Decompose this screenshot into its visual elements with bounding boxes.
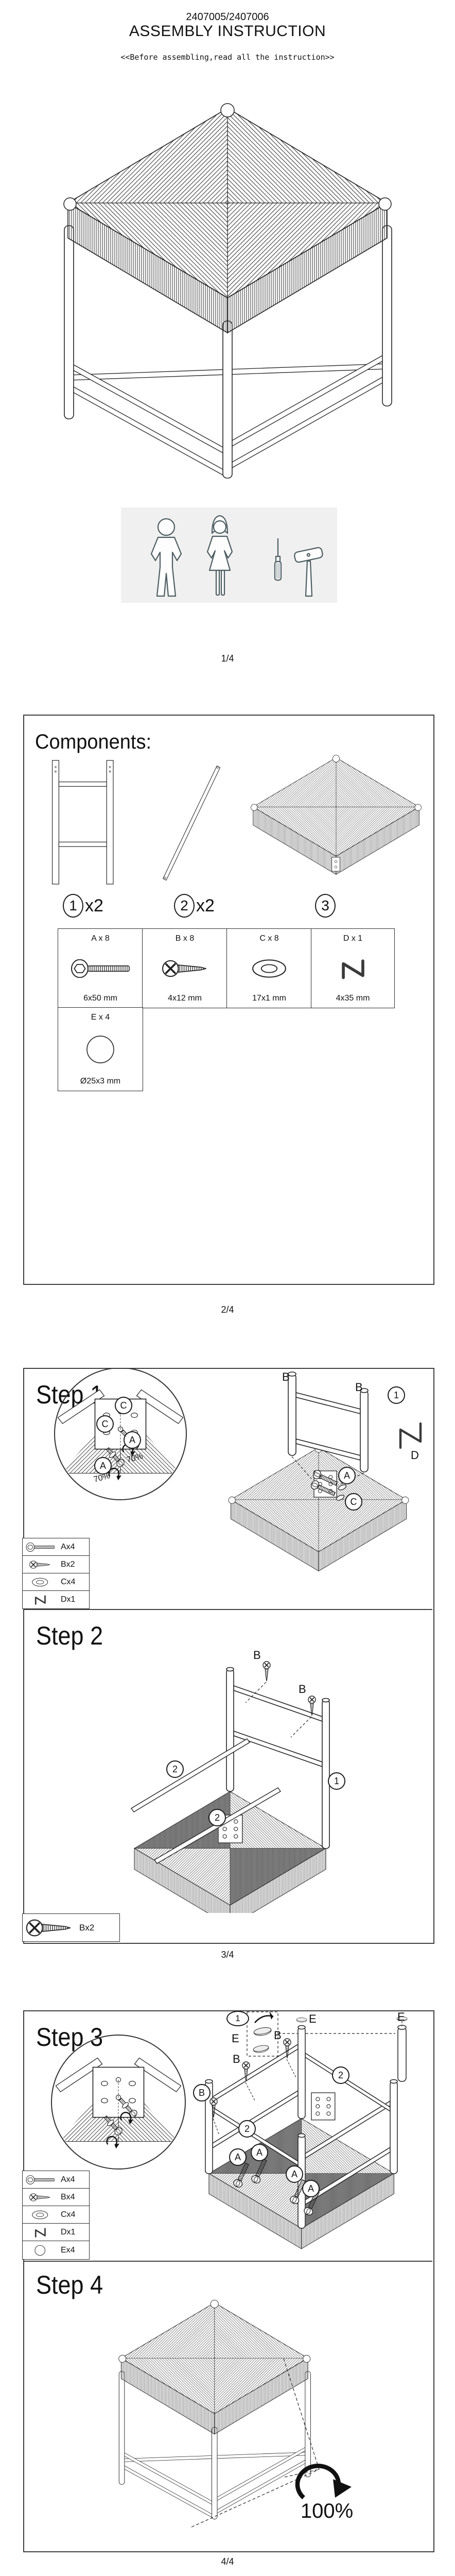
glide-disc-icon [25,2244,57,2257]
legend-qty: Dx1 [61,1595,75,1604]
hardware-cell-a: A x 8 6x50 mm [58,928,143,1008]
callout-screw-b: B [274,2029,282,2042]
components-heading: Components: [35,731,151,754]
callout-bolt-a: A [94,1457,112,1475]
callout-glide-e: E [309,2012,317,2026]
step-1-legend-row-b: Bx2 [22,1555,90,1573]
leg-with-glide-detail [398,2025,406,2081]
callout-part-1: 1 [328,1772,345,1790]
legend-qty: Cx4 [61,1578,75,1587]
part-1-label: 1 x2 [63,894,103,918]
step-3-legend-row-b: Bx4 [22,2188,90,2206]
assembly-instruction-document: 2407005/2407006 ASSEMBLY INSTRUCTION <<B… [0,0,455,2576]
people-tools-drawing [121,507,337,603]
bolt-icon [69,959,131,978]
callout-washer-c: C [115,1397,132,1414]
callout-screw-b: B [282,1370,290,1384]
washer-icon [25,1575,57,1589]
hardware-d-size: 4x35 mm [311,994,394,1003]
callout-screw-b: B [299,1683,306,1696]
legend-qty: Cx4 [61,2210,75,2219]
step-3-zoom-detail [56,2058,181,2149]
read-instruction-note: <<Before assembling,read all the instruc… [0,53,455,62]
hardware-cell-b: B x 8 4x12 mm [142,928,227,1008]
step-3-legend-row-d: Dx1 [22,2223,90,2241]
hardware-cell-e: E x 4 Ø25x3 mm [58,1007,143,1091]
allen-key-icon [25,1593,57,1606]
callout-bolt-a: A [124,1431,141,1449]
allen-key-icon [25,2226,57,2239]
callout-screw-b: B [233,2053,240,2066]
callout-bolt-a: A [286,2165,303,2183]
callout-bolt-a: A [338,1467,356,1484]
legend-qty: Bx2 [79,1923,94,1933]
step-2-legend-row-b: Bx2 [22,1913,120,1942]
hardware-b-code: B x 8 [143,934,227,943]
step-4-diagram [23,2261,432,2549]
part-2-label: 2 x2 [174,894,215,918]
callout-screw-b: B [193,2084,211,2102]
page-number-1: 1/4 [0,653,455,664]
step-1-legend-row-c: Cx4 [22,1573,90,1591]
callout-part-1: 1 [226,2011,249,2026]
step-3-legend-row-c: Cx4 [22,2206,90,2224]
callout-part-2: 2 [238,2120,256,2138]
step-3-legend-row-e: Ex4 [22,2241,90,2260]
callout-part-2: 2 [332,2066,349,2084]
hardware-b-size: 4x12 mm [143,994,227,1003]
hardware-cell-c: C x 8 17x1 mm [226,928,312,1008]
page-number-3: 3/4 [0,1950,455,1960]
callout-allen-key-d: D [411,1449,419,1462]
legend-qty: Bx4 [61,2193,75,2202]
step-1-legend-row-a: Ax4 [22,1538,90,1556]
assembled-bench-drawing [41,87,414,494]
screw-icon [25,1918,73,1938]
callout-glide-e: E [232,2032,239,2045]
part-1-quantity: x2 [85,896,103,916]
part-1-circled-number: 1 [63,894,83,918]
callout-washer-c: C [96,1415,114,1433]
flip-100-percent: 100% [286,2500,368,2523]
callout-part-2: 2 [166,1760,184,1778]
hammer-icon [294,547,323,596]
page-number-2: 2/4 [0,1304,455,1315]
washer-icon [25,2208,57,2222]
page-number-4: 4/4 [0,2556,455,2567]
callout-bolt-a: A [229,2148,247,2166]
hardware-a-code: A x 8 [58,934,143,943]
callout-bolt-a: A [302,2180,320,2197]
hardware-a-size: 6x50 mm [58,994,143,1003]
part-3-seat-drawing [250,753,422,882]
legend-qty: Bx2 [61,1560,75,1569]
corner-bracket-detail [332,857,340,871]
step-2-diagram [23,1609,432,1913]
hardware-c-code: C x 8 [227,934,311,943]
legend-qty: Ax4 [61,2175,75,2184]
callout-glide-e: E [397,2010,405,2024]
hardware-c-size: 17x1 mm [227,994,311,1003]
step-3-legend-row-a: Ax4 [22,2171,90,2189]
callout-screw-b: B [253,1649,261,1662]
screw-icon [25,1558,57,1571]
callout-part-1: 1 [388,1386,405,1404]
part-3-circled-number: 3 [315,894,336,918]
woman-icon [207,516,232,595]
hardware-cell-d: D x 1 4x35 mm [311,928,395,1008]
callout-washer-c: C [345,1493,362,1511]
part-2-circled-number: 2 [174,894,195,918]
screw-icon [161,959,208,978]
screw-icon [25,2191,57,2204]
part-2-quantity: x2 [196,896,215,916]
glide-disc-icon [85,1035,115,1064]
rotate-arrow-icon [297,2466,352,2498]
two-person-and-tools-panel [121,507,337,603]
hardware-e-size: Ø25x3 mm [58,1077,143,1086]
legend-qty: Ax4 [61,1543,75,1552]
callout-screw-b: B [355,1381,363,1394]
callout-bolt-a: A [251,2144,268,2161]
screwdriver-icon [275,538,281,580]
man-icon [151,519,181,596]
hardware-d-code: D x 1 [311,934,394,943]
glide-detail [247,2011,395,2056]
part-2-rod-drawing [160,761,222,883]
allen-key-icon [339,957,367,980]
allen-key-drawing [400,1423,421,1448]
part-1-h-frame-drawing [51,760,115,885]
washer-icon [252,959,287,978]
document-title: ASSEMBLY INSTRUCTION [0,23,455,40]
model-number: 2407005/2407006 [0,11,455,23]
bolt-icon [25,2173,57,2187]
legend-qty: Ex4 [61,2246,75,2255]
bolt-icon [25,1540,57,1554]
callout-part-2: 2 [208,1809,226,1826]
hardware-e-code: E x 4 [58,1013,143,1022]
step-1-legend-row-d: Dx1 [22,1590,90,1609]
part-3-label: 3 [315,894,337,918]
legend-qty: Dx1 [61,2228,75,2237]
